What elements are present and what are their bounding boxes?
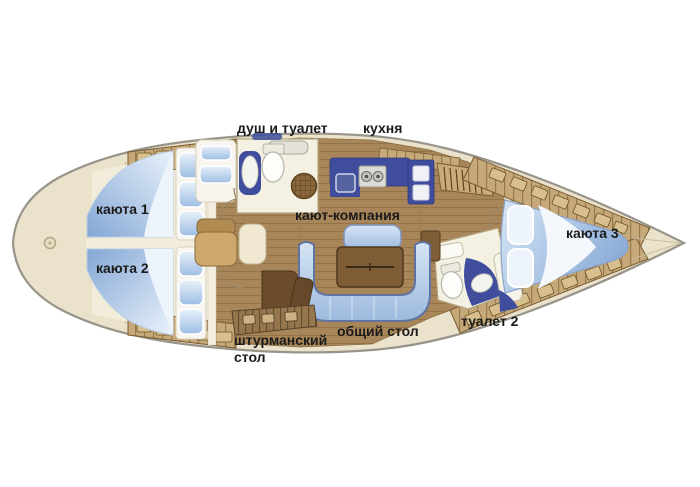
bow-hatch-dot bbox=[49, 242, 52, 245]
galley-sink bbox=[336, 174, 355, 192]
label-cabin3: каюта 3 bbox=[566, 225, 619, 242]
label-nav-table: штурманский стол bbox=[234, 332, 327, 366]
label-toilet2: туалет 2 bbox=[461, 313, 518, 330]
galley-side-hatch-1 bbox=[413, 166, 429, 181]
label-shower-toilet: душ и туалет bbox=[237, 120, 328, 137]
stove-burner-right-dot bbox=[376, 175, 380, 179]
label-kitchen: кухня bbox=[363, 120, 402, 137]
corridor-cushion-1 bbox=[201, 146, 231, 160]
label-cabin1: каюта 1 bbox=[96, 201, 149, 218]
shower-sink bbox=[242, 156, 258, 188]
berth-divider bbox=[86, 239, 174, 248]
label-common-table: общий стол bbox=[337, 323, 419, 340]
label-nav-table-line1: штурманский bbox=[234, 332, 327, 349]
corridor-cushion-2 bbox=[200, 166, 232, 183]
label-nav-table-line2: стол bbox=[234, 349, 327, 366]
cabin3-pillow-bottom bbox=[508, 249, 533, 287]
toilet1-bowl bbox=[262, 152, 284, 182]
yacht-floor-plan-drawing bbox=[0, 0, 700, 487]
mast-seat bbox=[195, 232, 237, 266]
label-saloon: кают-компания bbox=[295, 207, 400, 224]
shower-grate bbox=[292, 174, 317, 199]
saloon-side-seat bbox=[239, 224, 266, 264]
galley-side-hatch-2 bbox=[413, 185, 429, 200]
yacht-floor-plan-screenshot: душ и туалет кухня каюта 1 каюта 2 кают-… bbox=[0, 0, 700, 487]
stove-burner-left-dot bbox=[365, 175, 369, 179]
label-cabin2: каюта 2 bbox=[96, 260, 149, 277]
cabin3-pillow-top bbox=[508, 206, 533, 244]
